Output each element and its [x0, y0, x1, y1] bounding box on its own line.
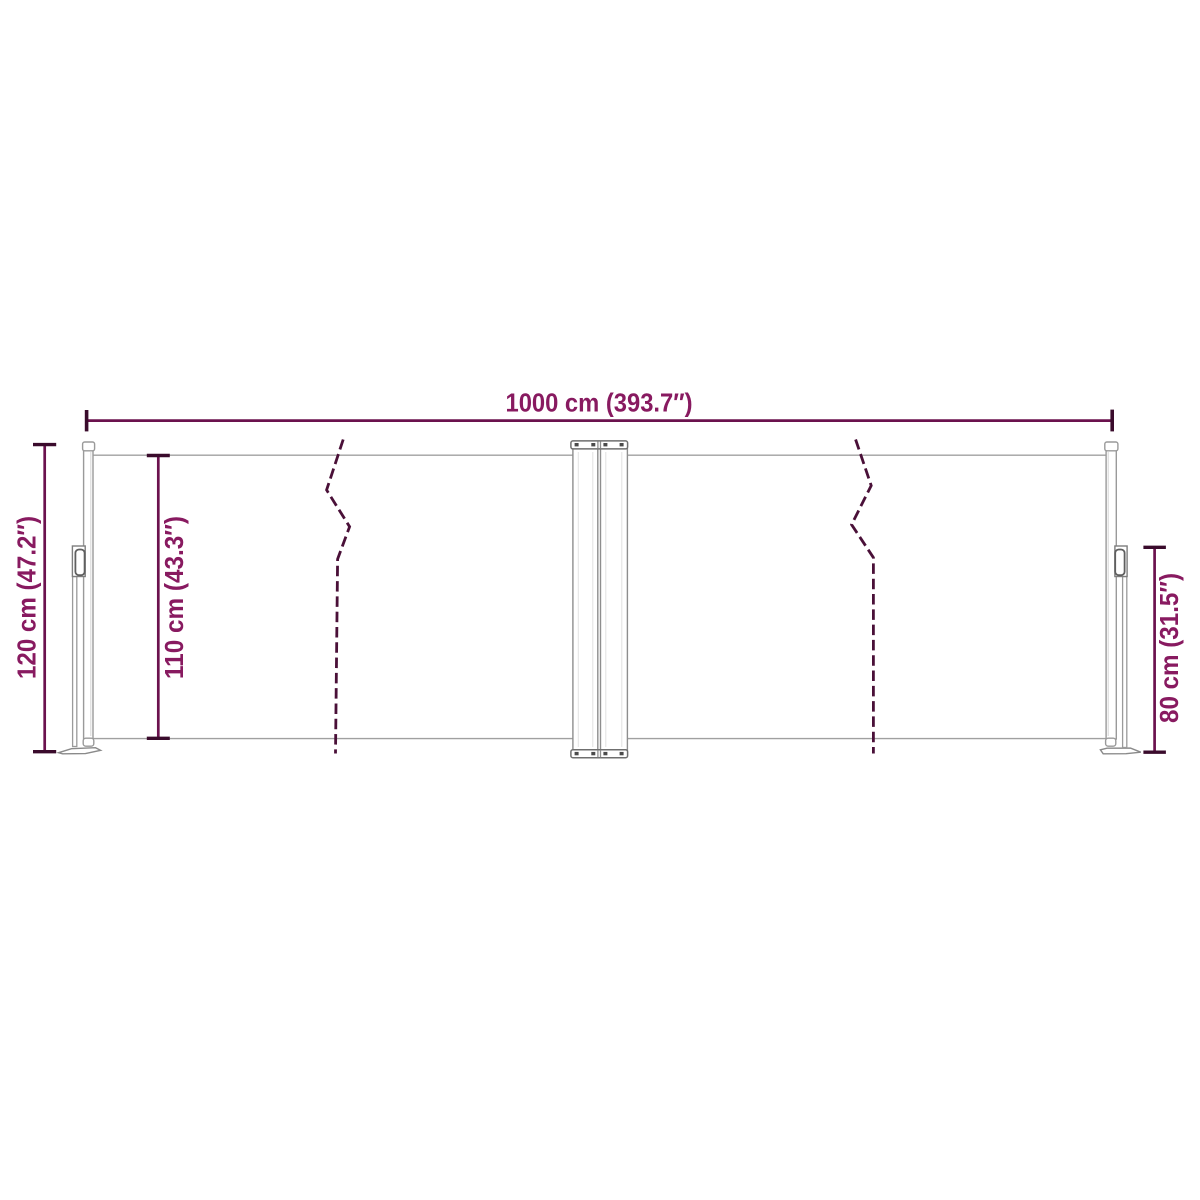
svg-text:120 cm (47.2″): 120 cm (47.2″): [12, 516, 42, 679]
svg-text:110 cm (43.3″): 110 cm (43.3″): [159, 516, 189, 679]
svg-text:1000 cm (393.7″): 1000 cm (393.7″): [506, 388, 693, 418]
svg-text:80 cm (31.5″): 80 cm (31.5″): [1154, 573, 1184, 723]
